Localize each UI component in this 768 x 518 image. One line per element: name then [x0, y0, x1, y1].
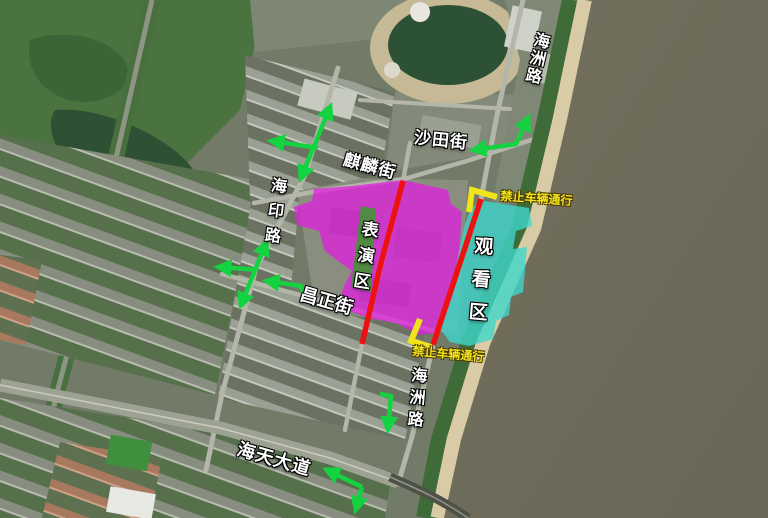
event-traffic-map: 海洲路 沙田街 麒麟街 海印路 表演区 观看区 昌正街 海洲路 海天大道 禁止车… [0, 0, 768, 518]
arrow-haitian-south [356, 487, 362, 509]
arrow-haiyin-south-twoway [241, 243, 266, 305]
arrow-qilin-west [272, 141, 318, 148]
arrow-changzheng-west [219, 267, 258, 270]
arrow-haitian-west [327, 470, 362, 487]
arrow-haizhou-south-elbow [380, 394, 391, 429]
arrow-haiyin-north-twoway [301, 107, 330, 178]
annotation-overlay [0, 0, 768, 518]
arrow-shatian-elbow [474, 118, 528, 150]
performance-zone-area [294, 180, 462, 335]
